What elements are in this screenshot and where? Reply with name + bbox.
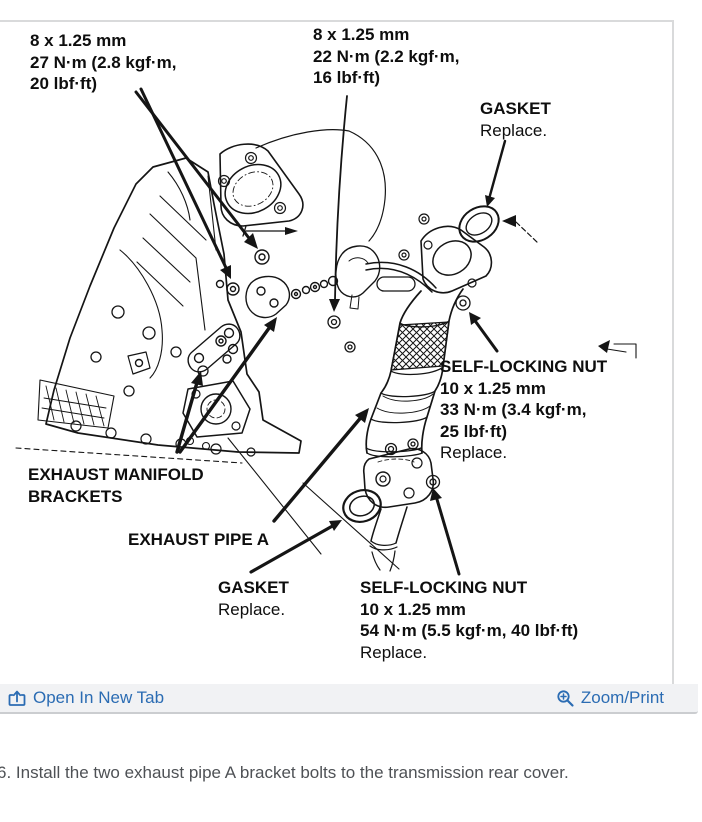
callout-note: Replace. — [360, 642, 578, 664]
callout-line: 10 x 1.25 mm — [360, 599, 578, 621]
callout-line: 33 N·m (3.4 kgf·m, — [440, 399, 607, 421]
page: 8 x 1.25 mm 27 N·m (2.8 kgf·m, 20 lbf·ft… — [0, 0, 702, 822]
callout-line: 54 N·m (5.5 kgf·m, 40 lbf·ft) — [360, 620, 578, 642]
engine-bracket — [246, 276, 338, 317]
callout-self-locking-nut-lower: SELF-LOCKING NUT 10 x 1.25 mm 54 N·m (5.… — [360, 577, 578, 663]
open-in-new-tab-label: Open In New Tab — [33, 688, 164, 708]
zoom-print-link[interactable]: Zoom/Print — [556, 684, 664, 712]
callout-exhaust-manifold-brackets: EXHAUST MANIFOLD BRACKETS — [28, 464, 204, 507]
callout-self-locking-nut-upper: SELF-LOCKING NUT 10 x 1.25 mm 33 N·m (3.… — [440, 356, 607, 464]
callout-gasket-top: GASKET Replace. — [480, 98, 551, 141]
zoom-in-magnifier-icon — [556, 689, 575, 708]
step-caption: 6. Install the two exhaust pipe A bracke… — [0, 762, 687, 784]
callout-line: 25 lbf·ft) — [440, 421, 607, 443]
callout-line: 8 x 1.25 mm — [30, 30, 176, 52]
callout-title: GASKET — [218, 577, 289, 599]
callout-line: BRACKETS — [28, 486, 204, 508]
callout-line: 10 x 1.25 mm — [440, 378, 607, 400]
callout-gasket-bottom: GASKET Replace. — [218, 577, 289, 620]
callout-line: EXHAUST MANIFOLD — [28, 464, 204, 486]
manifold-flange — [217, 130, 386, 241]
callout-note: Replace. — [440, 442, 607, 464]
callout-title: SELF-LOCKING NUT — [360, 577, 578, 599]
callout-title: GASKET — [480, 98, 551, 120]
callout-line: 8 x 1.25 mm — [313, 24, 459, 46]
callout-note: Replace. — [480, 120, 551, 142]
callout-line: 22 N·m (2.2 kgf·m, — [313, 46, 459, 68]
zoom-print-label: Zoom/Print — [581, 688, 664, 708]
callout-bolt-upper-mid: 8 x 1.25 mm 22 N·m (2.2 kgf·m, 16 lbf·ft… — [313, 24, 459, 89]
callout-title: EXHAUST PIPE A — [128, 529, 269, 551]
callout-note: Replace. — [218, 599, 289, 621]
callout-line: 27 N·m (2.8 kgf·m, — [30, 52, 176, 74]
callout-exhaust-pipe-a: EXHAUST PIPE A — [128, 529, 269, 551]
exhaust-manifold-brackets — [128, 324, 240, 374]
callout-title: SELF-LOCKING NUT — [440, 356, 607, 378]
open-in-new-tab-link[interactable]: Open In New Tab — [8, 684, 164, 712]
viewer-toolbar: Open In New Tab Zoom/Print — [0, 684, 698, 714]
callout-line: 16 lbf·ft) — [313, 67, 459, 89]
callout-bolt-upper-left: 8 x 1.25 mm 27 N·m (2.8 kgf·m, 20 lbf·ft… — [30, 30, 176, 95]
callout-line: 20 lbf·ft) — [30, 73, 176, 95]
open-in-new-tab-icon — [8, 689, 27, 708]
